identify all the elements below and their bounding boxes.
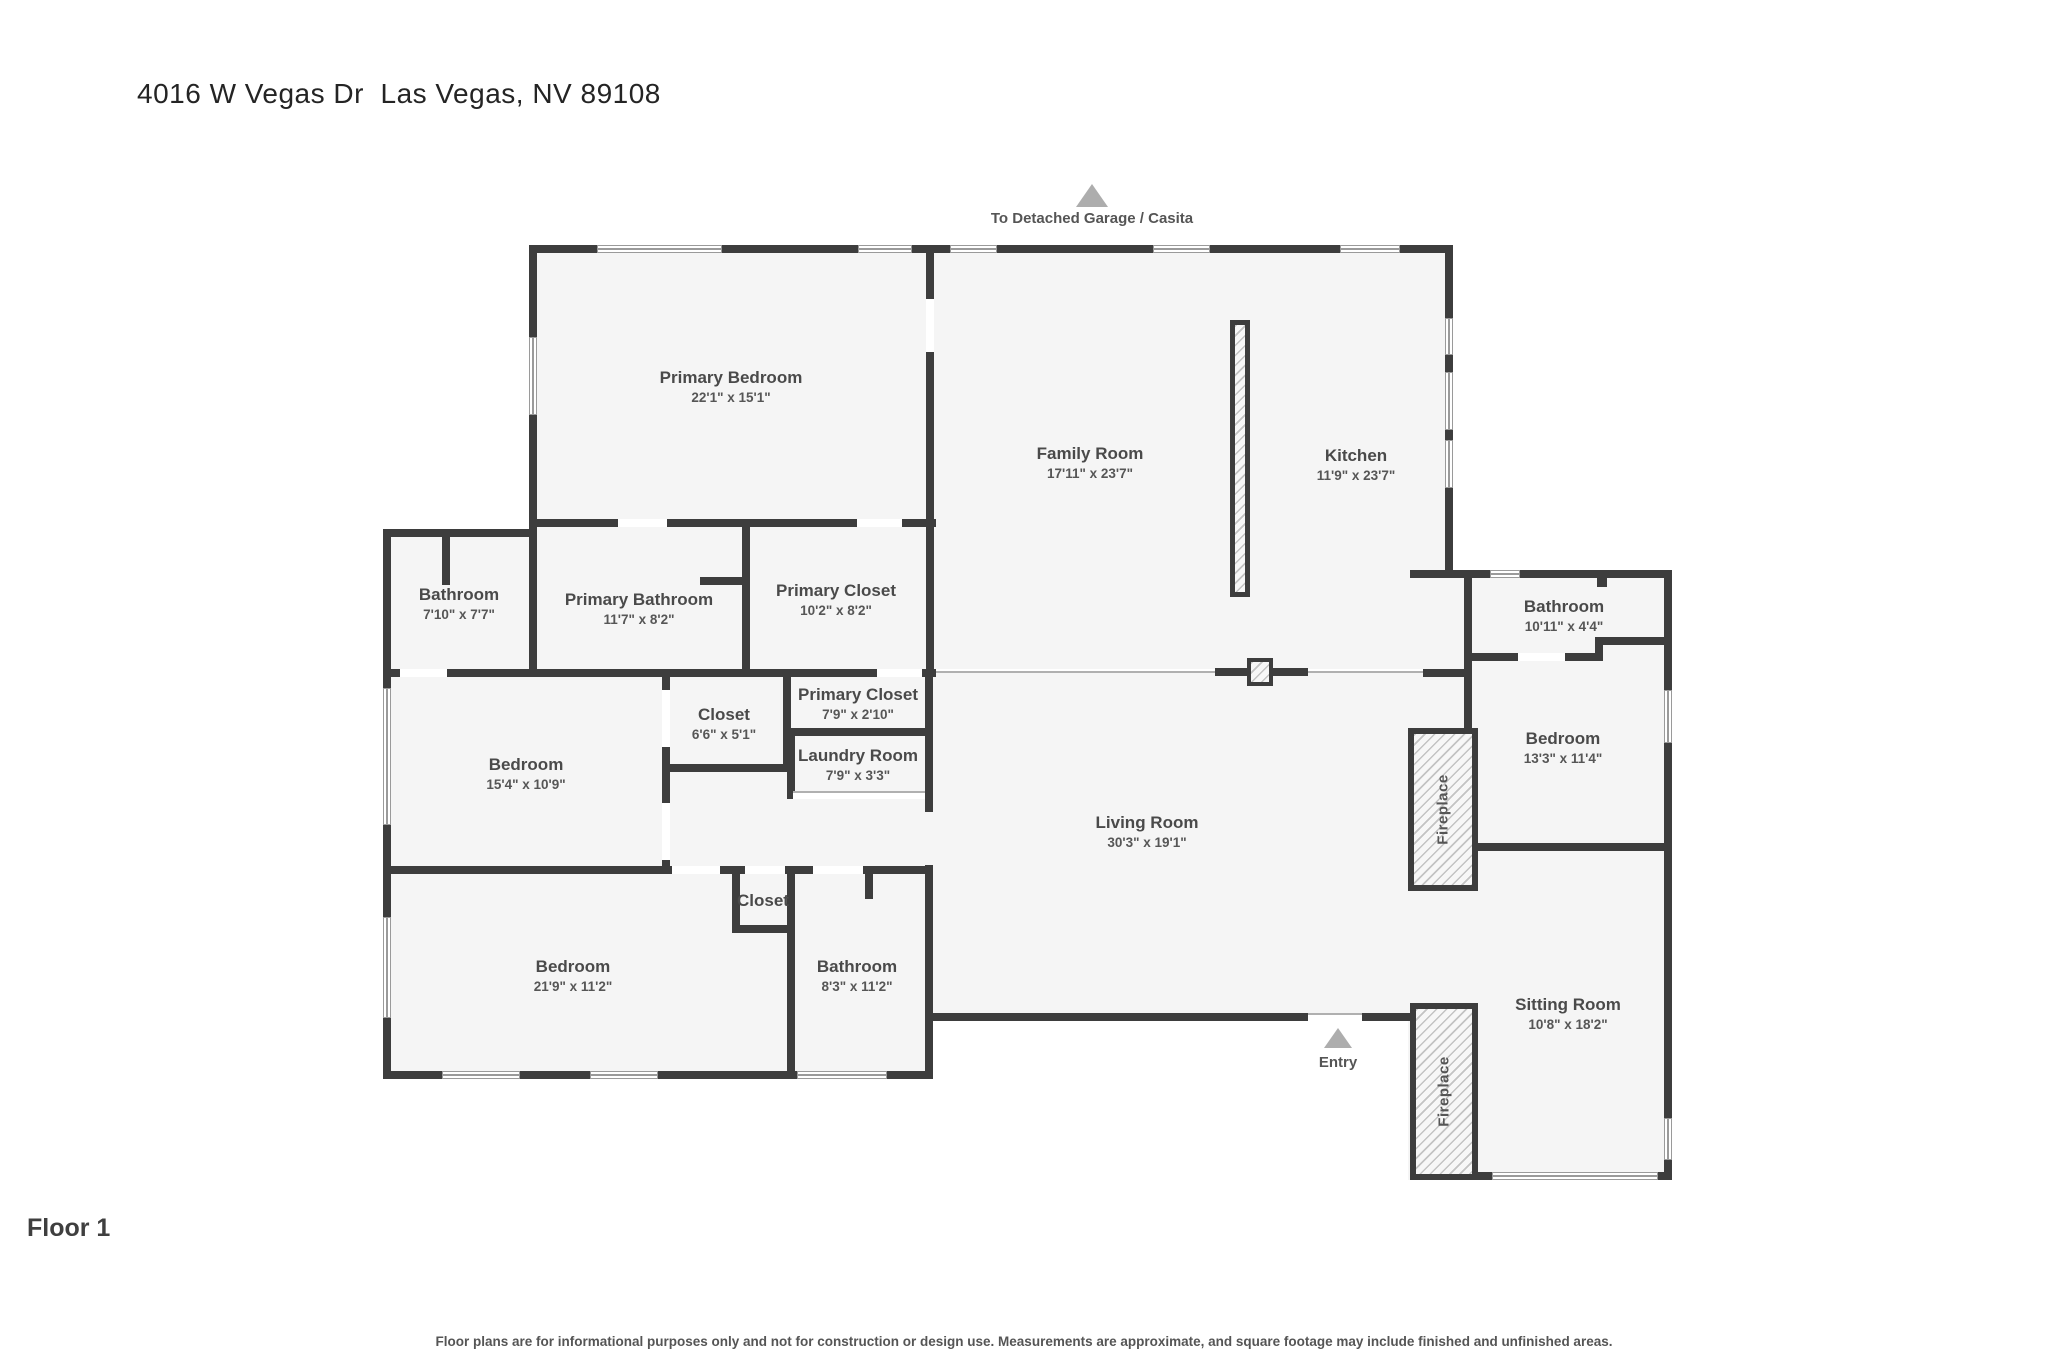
cased-opening — [1308, 1013, 1362, 1021]
window-marker — [590, 1071, 658, 1079]
room-label-family-room: Family Room 17'11" x 23'7" — [1037, 444, 1144, 483]
kitchen-island — [1230, 320, 1250, 597]
window-marker — [1664, 1118, 1672, 1160]
door-opening — [813, 866, 863, 874]
window-marker — [1340, 245, 1400, 253]
window-marker — [597, 245, 722, 253]
garage-annotation: To Detached Garage / Casita — [991, 210, 1193, 227]
entry-annotation: Entry — [1319, 1054, 1357, 1071]
window-marker — [1445, 372, 1453, 430]
window-marker — [1153, 245, 1210, 253]
floor-number-label: Floor 1 — [27, 1214, 110, 1243]
door-opening — [926, 299, 934, 352]
floor-area — [1410, 578, 1464, 669]
wall-segment — [932, 1013, 1308, 1021]
cased-opening — [793, 791, 925, 799]
wall-segment — [1464, 653, 1472, 730]
door-opening — [745, 866, 785, 874]
wall-segment — [442, 537, 450, 585]
room-label-kitchen: Kitchen 11'9" x 23'7" — [1317, 446, 1396, 485]
wall-segment — [662, 764, 791, 772]
island-column — [1247, 658, 1273, 686]
window-marker — [1445, 318, 1453, 355]
floor-area — [1472, 578, 1664, 1172]
window-marker — [950, 245, 997, 253]
room-label-bathroom-right: Bathroom 10'11" x 4'4" — [1524, 597, 1604, 636]
room-label-primary-closet-large: Primary Closet 10'2" x 8'2" — [776, 581, 896, 620]
entry-arrow-icon — [1324, 1028, 1352, 1048]
window-marker — [858, 245, 912, 253]
room-label-sitting-room: Sitting Room 10'8" x 18'2" — [1515, 995, 1621, 1034]
door-opening — [618, 519, 667, 527]
room-label-bedroom-133: Bedroom 13'3" x 11'4" — [1524, 729, 1603, 768]
wall-segment — [787, 728, 795, 799]
door-opening — [662, 803, 670, 860]
room-label-bathroom-left: Bathroom 7'10" x 7'7" — [419, 585, 499, 624]
fireplace-label: Fireplace — [1435, 774, 1452, 844]
window-marker — [529, 337, 537, 415]
room-label-living-room: Living Room 30'3" x 19'1" — [1096, 813, 1199, 852]
room-label-closet-small: Closet — [737, 891, 789, 913]
door-opening — [877, 669, 922, 677]
window-marker — [1490, 570, 1520, 578]
floor-area — [932, 671, 1472, 1013]
wall-segment — [529, 537, 537, 677]
wall-segment — [1472, 843, 1672, 851]
wall-segment — [1595, 637, 1603, 661]
fireplace-lower: Fireplace — [1410, 1003, 1478, 1180]
room-label-closet-66: Closet 6'6" x 5'1" — [692, 705, 756, 744]
door-opening — [400, 669, 447, 677]
wall-segment — [1595, 637, 1672, 645]
room-label-bathroom-83: Bathroom 8'3" x 11'2" — [817, 957, 897, 996]
window-marker — [797, 1071, 887, 1079]
wall-segment — [865, 874, 873, 899]
wall-segment — [383, 669, 936, 677]
door-opening — [857, 519, 902, 527]
garage-arrow-icon — [1076, 184, 1108, 207]
door-opening — [672, 866, 720, 874]
room-label-primary-bathroom: Primary Bathroom 11'7" x 8'2" — [565, 590, 713, 629]
room-label-bedroom-154: Bedroom 15'4" x 10'9" — [486, 755, 565, 794]
page-title: 4016 W Vegas Dr Las Vegas, NV 89108 — [137, 78, 661, 110]
room-label-bedroom-219: Bedroom 21'9" x 11'2" — [534, 957, 613, 996]
wall-segment — [787, 728, 933, 736]
door-opening — [1518, 653, 1565, 661]
wall-segment — [1362, 1013, 1410, 1021]
wall-segment — [1664, 570, 1672, 1180]
wall-segment — [925, 669, 933, 812]
window-marker — [1492, 1172, 1658, 1180]
wall-segment — [1597, 578, 1607, 587]
wall-segment — [383, 529, 537, 537]
floor-plan-page: 4016 W Vegas Dr Las Vegas, NV 89108 Fire… — [0, 0, 2048, 1365]
open-boundary-line — [1308, 671, 1423, 673]
window-marker — [1664, 690, 1672, 743]
wall-segment — [742, 519, 750, 677]
window-marker — [1445, 440, 1453, 488]
door-opening — [662, 690, 670, 747]
room-label-primary-bedroom: Primary Bedroom 22'1" x 15'1" — [660, 368, 803, 407]
room-label-primary-closet-small: Primary Closet 7'9" x 2'10" — [798, 685, 918, 724]
open-boundary-line — [933, 671, 1215, 673]
disclaimer-text: Floor plans are for informational purpos… — [0, 1334, 2048, 1349]
window-marker — [383, 688, 391, 825]
fireplace-label: Fireplace — [1436, 1056, 1453, 1126]
wall-segment — [732, 925, 795, 933]
window-marker — [383, 917, 391, 1018]
wall-segment — [1472, 653, 1518, 661]
room-label-laundry-room: Laundry Room 7'9" x 3'3" — [798, 746, 918, 785]
wall-segment — [925, 865, 933, 1078]
fireplace-upper: Fireplace — [1408, 728, 1478, 891]
window-marker — [442, 1071, 520, 1079]
